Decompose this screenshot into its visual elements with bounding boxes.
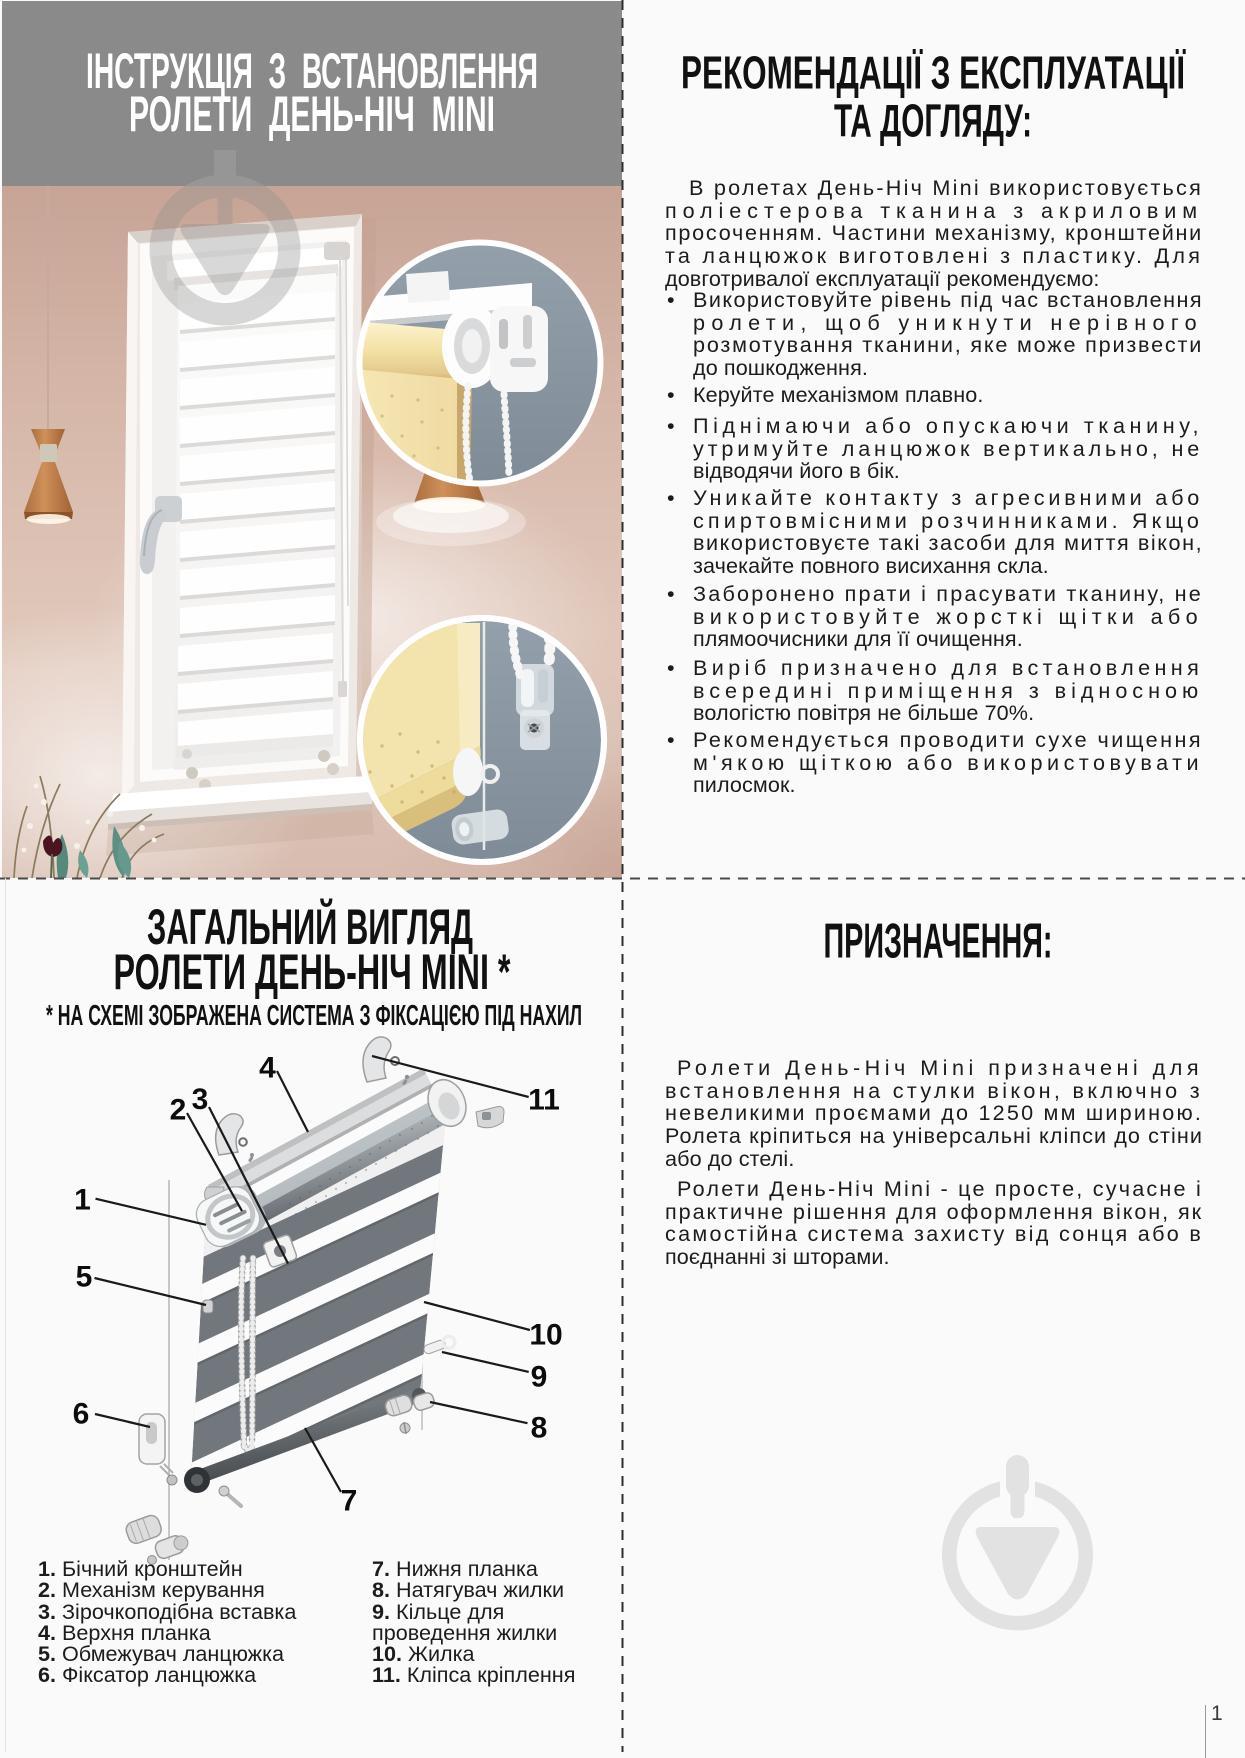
svg-text:РОЛЕТИ ДЕНЬ-НІЧ MINI: РОЛЕТИ ДЕНЬ-НІЧ MINI [129, 86, 495, 142]
svg-text:* НА СХЕМІ ЗОБРАЖЕНА СИСТЕМА З: * НА СХЕМІ ЗОБРАЖЕНА СИСТЕМА З ФІКСАЦІЄЮ… [46, 1000, 582, 1032]
svg-text:10: 10 [529, 1319, 562, 1352]
svg-text:3: 3 [192, 1083, 209, 1116]
svg-text:11: 11 [528, 1084, 560, 1117]
svg-text:2: 2 [170, 1094, 187, 1127]
svg-text:РОЛЕТИ ДЕНЬ-НІЧ MINI *: РОЛЕТИ ДЕНЬ-НІЧ MINI * [114, 944, 511, 1000]
svg-text:1: 1 [74, 1184, 91, 1217]
svg-text:ПРИЗНАЧЕННЯ:: ПРИЗНАЧЕННЯ: [824, 914, 1053, 968]
svg-text:8: 8 [531, 1412, 548, 1445]
svg-text:9: 9 [531, 1361, 548, 1394]
svg-text:4: 4 [259, 1052, 276, 1085]
svg-text:7: 7 [341, 1485, 358, 1518]
svg-text:ТА ДОГЛЯДУ:: ТА ДОГЛЯДУ: [834, 94, 1032, 146]
svg-text:6: 6 [73, 1398, 90, 1431]
svg-text:РЕКОМЕНДАЦІЇ З ЕКСПЛУАТАЦІЇ: РЕКОМЕНДАЦІЇ З ЕКСПЛУАТАЦІЇ [681, 47, 1186, 99]
svg-text:5: 5 [76, 1261, 93, 1294]
